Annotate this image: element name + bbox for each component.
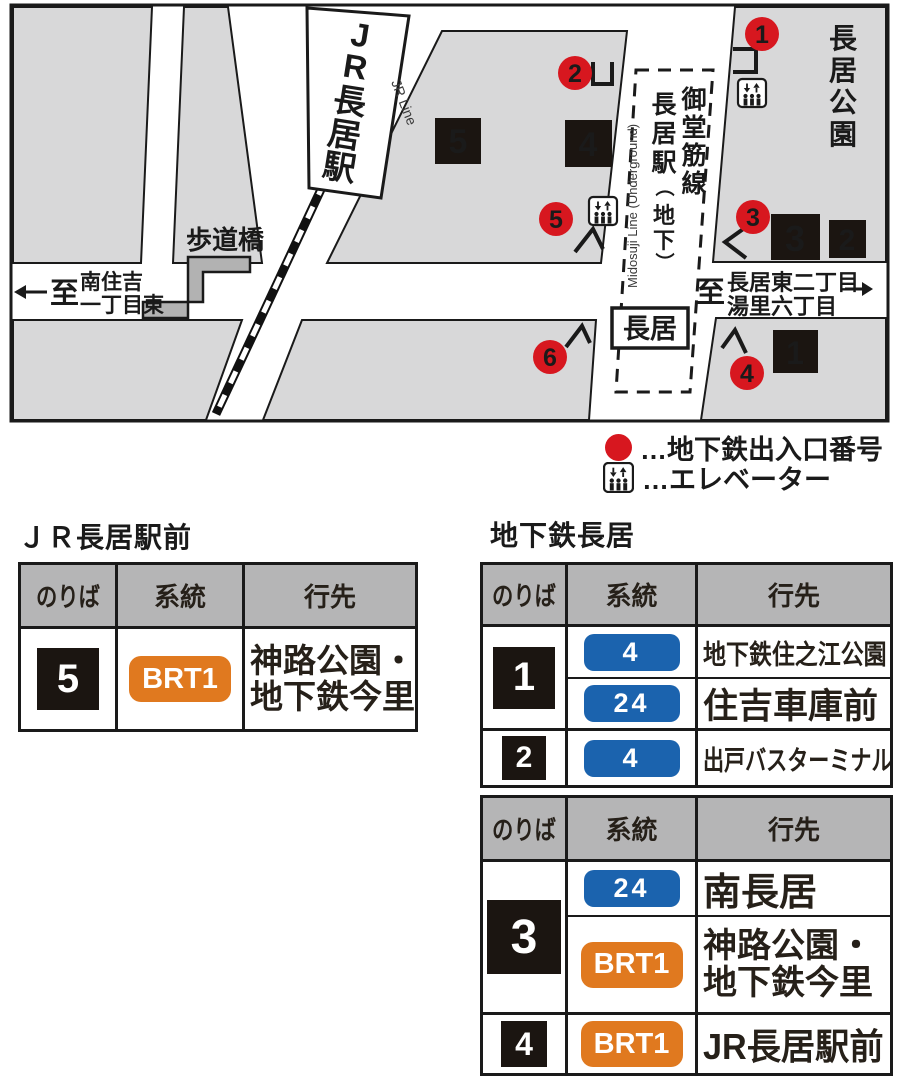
stop-number-badge: 3 [487, 900, 561, 974]
destination-cell: 神路公園・地下鉄今里 [245, 629, 415, 729]
svg-text:居: 居 [829, 55, 857, 86]
svg-text:園: 園 [829, 119, 857, 150]
svg-text:居: 居 [651, 120, 676, 148]
legend-elevator-label: …エレベーター [642, 458, 831, 497]
column-header-yukisaki: 行先 [698, 798, 890, 862]
route-cell: BRT1 [118, 629, 245, 729]
station-area-map: J R 長 居 駅 JR Line 歩道橋 至 南住吉 一丁目東 至 長居東二丁… [0, 0, 899, 425]
station-guide-page: J R 長 居 駅 JR Line 歩道橋 至 南住吉 一丁目東 至 長居東二丁… [0, 0, 899, 1078]
jr-area-title: ＪＲ長居駅前 [18, 516, 192, 556]
svg-text:2: 2 [568, 60, 582, 88]
city-block [13, 7, 152, 263]
svg-text:筋: 筋 [681, 141, 706, 170]
svg-text:（: （ [653, 177, 676, 196]
route-badge-brt1: BRT1 [129, 656, 231, 702]
pedestrian-bridge-label: 歩道橋 [186, 225, 265, 255]
subway-table-1: のりば 系統 行先 1 4 地下鉄住之江公園 24 住吉車庫前 2 4 出戸バス… [480, 562, 893, 788]
svg-text:公: 公 [829, 87, 857, 118]
column-header-noriba: のりば [21, 565, 118, 629]
svg-text:1: 1 [786, 335, 804, 371]
elevator-icon [589, 197, 617, 225]
svg-text:3: 3 [746, 204, 760, 232]
destination-cell: JR長居駅前 [698, 1015, 890, 1073]
destination-cell: 神路公園・地下鉄今里 [698, 917, 890, 1015]
svg-text:）: ） [653, 252, 676, 271]
route-badge-4: 4 [584, 634, 680, 671]
legend-elevator-row: …エレベーター [603, 458, 831, 497]
nagai-park-label: 長 居 公 園 [829, 23, 858, 150]
column-header-keito: 系統 [568, 798, 698, 862]
elevator-icon [603, 462, 634, 493]
stop-cell: 2 [483, 731, 568, 785]
route-cell: BRT1 [568, 917, 698, 1015]
route-badge-brt1: BRT1 [581, 1021, 683, 1067]
destination-cell: 住吉車庫前 [698, 679, 890, 731]
svg-text:一丁目東: 一丁目東 [80, 294, 164, 317]
route-cell: 4 [568, 627, 698, 679]
column-header-noriba: のりば [483, 565, 568, 627]
svg-text:2: 2 [839, 224, 856, 257]
destination-cell: 南長居 [698, 862, 890, 917]
column-header-keito: 系統 [568, 565, 698, 627]
svg-text:1: 1 [755, 21, 769, 49]
route-cell: 4 [568, 731, 698, 785]
stop-number-badge: 4 [501, 1021, 547, 1067]
stop-cell: 4 [483, 1015, 568, 1073]
svg-text:御: 御 [680, 85, 706, 114]
column-header-noriba: のりば [483, 798, 568, 862]
stop-number-badge: 2 [502, 736, 546, 780]
svg-text:駅: 駅 [320, 146, 358, 188]
stop-cell: 5 [21, 629, 118, 729]
route-badge-24: 24 [584, 685, 680, 722]
svg-text:地: 地 [653, 203, 675, 228]
svg-text:長居東二丁目: 長居東二丁目 [727, 270, 859, 295]
metro-line-en-label: Midosuji Line (Underground) [625, 124, 640, 288]
svg-text:下: 下 [653, 228, 675, 253]
route-badge-brt1: BRT1 [581, 942, 683, 988]
stop-number-badge: 5 [37, 648, 99, 710]
stop-cell: 3 [483, 862, 568, 1015]
route-cell: 24 [568, 862, 698, 917]
svg-text:5: 5 [549, 206, 563, 234]
exit-number-dot-icon [605, 434, 632, 461]
destination-cell: 出戸バスターミナル [698, 731, 890, 785]
elevator-icon [738, 79, 766, 107]
svg-text:6: 6 [543, 344, 557, 372]
svg-text:長: 長 [651, 91, 677, 119]
route-cell: 24 [568, 679, 698, 731]
svg-text:南住吉: 南住吉 [80, 270, 143, 294]
svg-text:堂: 堂 [681, 113, 706, 142]
column-header-yukisaki: 行先 [698, 565, 890, 627]
svg-text:5: 5 [449, 123, 468, 161]
column-header-yukisaki: 行先 [245, 565, 415, 629]
jr-area-table: のりば 系統 行先 5 BRT1 神路公園・地下鉄今里 [18, 562, 418, 732]
stop-cell: 1 [483, 627, 568, 731]
route-cell: BRT1 [568, 1015, 698, 1073]
svg-text:4: 4 [579, 126, 598, 164]
svg-text:至: 至 [696, 277, 725, 309]
subway-table-2: のりば 系統 行先 3 24 南長居 BRT1 神路公園・地下鉄今里 4 BRT… [480, 795, 893, 1076]
subway-area-title: 地下鉄長居 [490, 514, 635, 554]
city-block [13, 320, 242, 420]
route-badge-24: 24 [584, 870, 680, 907]
destination-cell: 地下鉄住之江公園 [698, 627, 890, 679]
stop-number-badge: 1 [493, 647, 555, 709]
svg-text:湯里六丁目: 湯里六丁目 [727, 294, 837, 319]
svg-text:至: 至 [50, 278, 79, 310]
svg-text:駅: 駅 [651, 149, 676, 177]
svg-text:長: 長 [829, 23, 858, 54]
nagai-station-name: 長居 [623, 314, 677, 344]
column-header-keito: 系統 [118, 565, 245, 629]
svg-text:3: 3 [785, 218, 805, 259]
svg-text:4: 4 [740, 360, 754, 388]
route-badge-4: 4 [584, 740, 680, 777]
svg-text:線: 線 [681, 169, 706, 198]
